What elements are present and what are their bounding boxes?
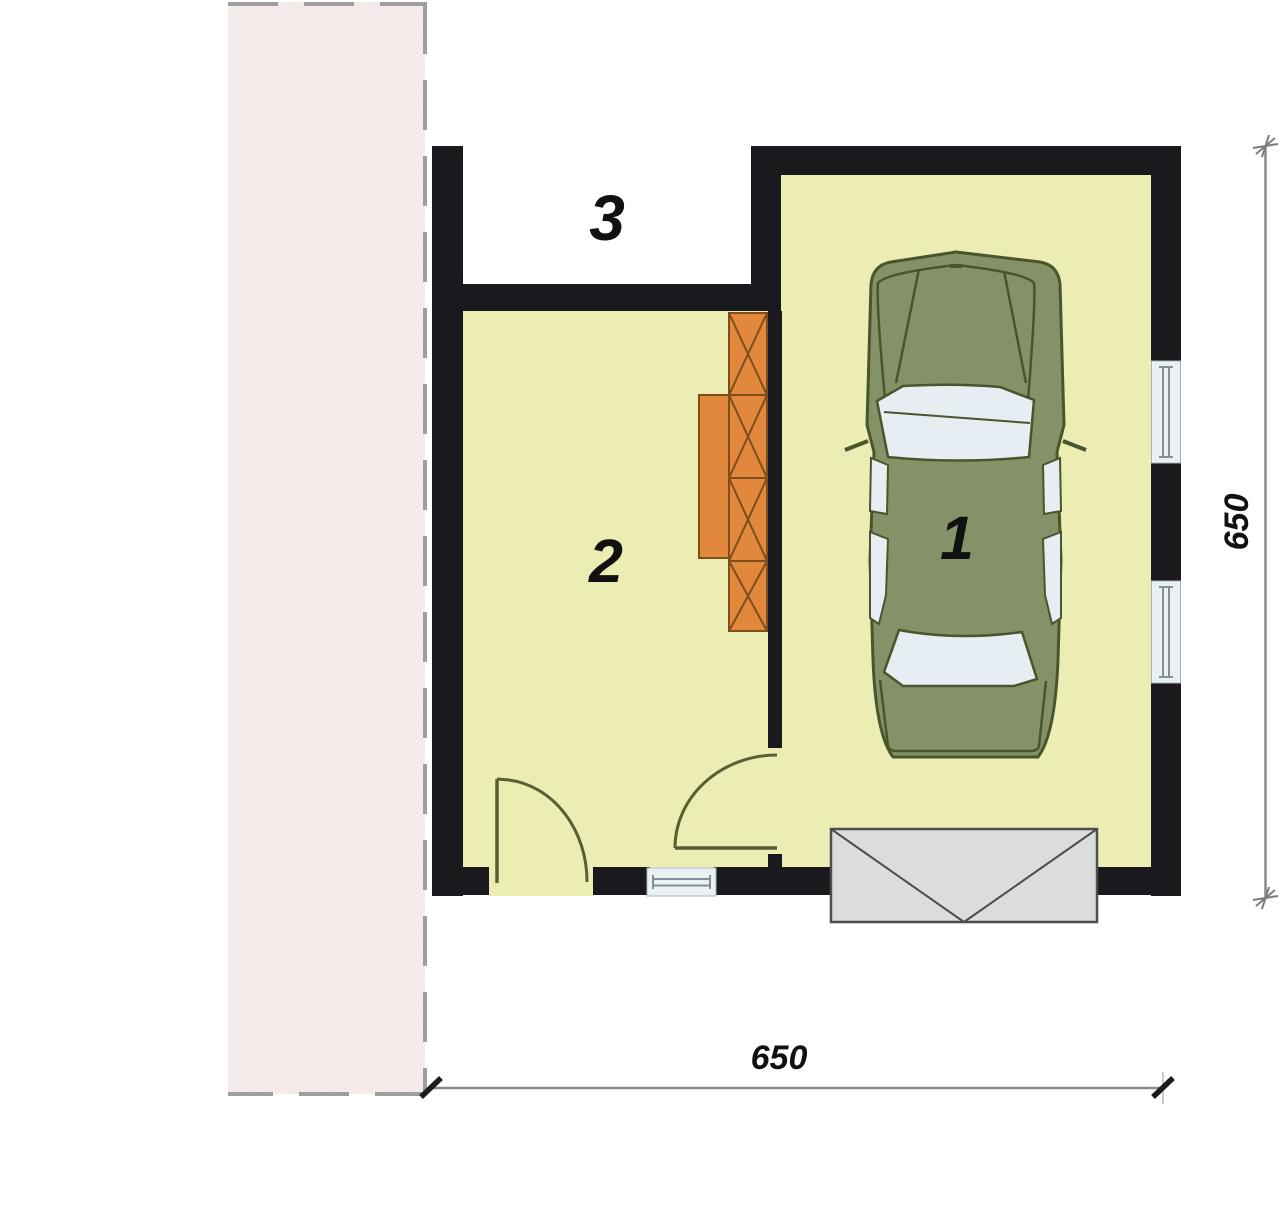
svg-text:2: 2 [588,527,623,595]
svg-text:3: 3 [589,182,625,254]
svg-text:650: 650 [1218,494,1256,551]
svg-text:650: 650 [751,1039,808,1077]
svg-text:1: 1 [940,504,974,572]
